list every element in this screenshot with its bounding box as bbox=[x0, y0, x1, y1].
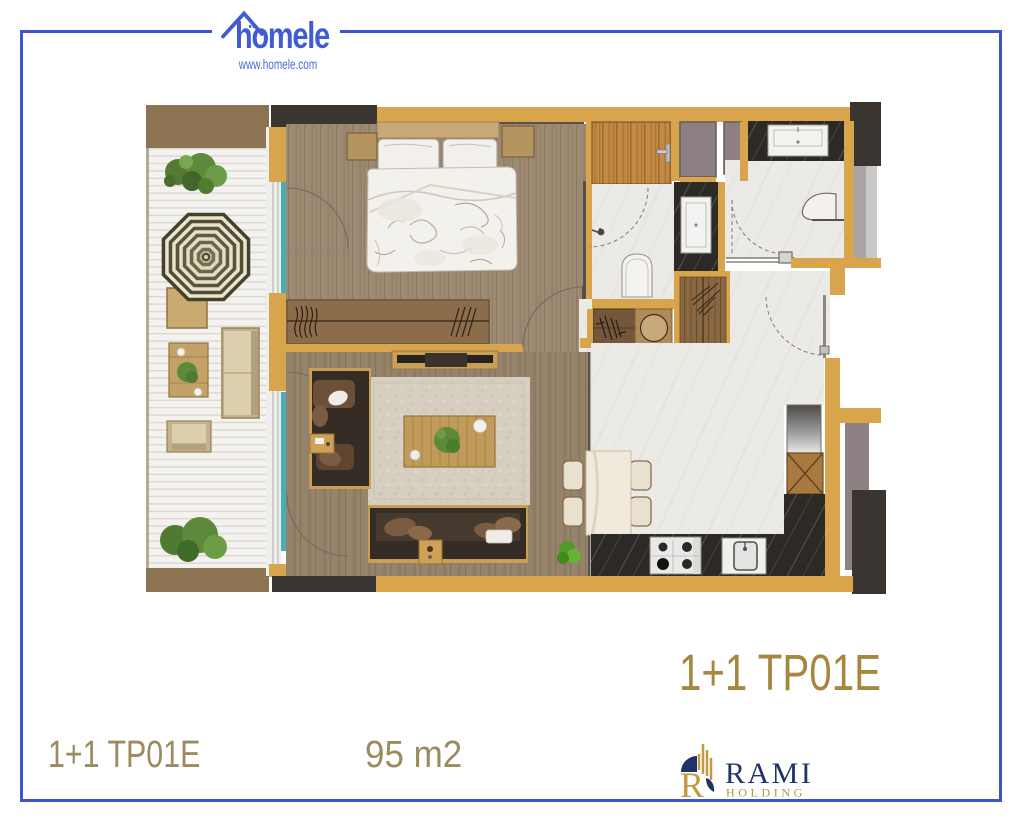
svg-text:HOLDING: HOLDING bbox=[726, 786, 806, 800]
svg-text:R: R bbox=[680, 765, 704, 802]
